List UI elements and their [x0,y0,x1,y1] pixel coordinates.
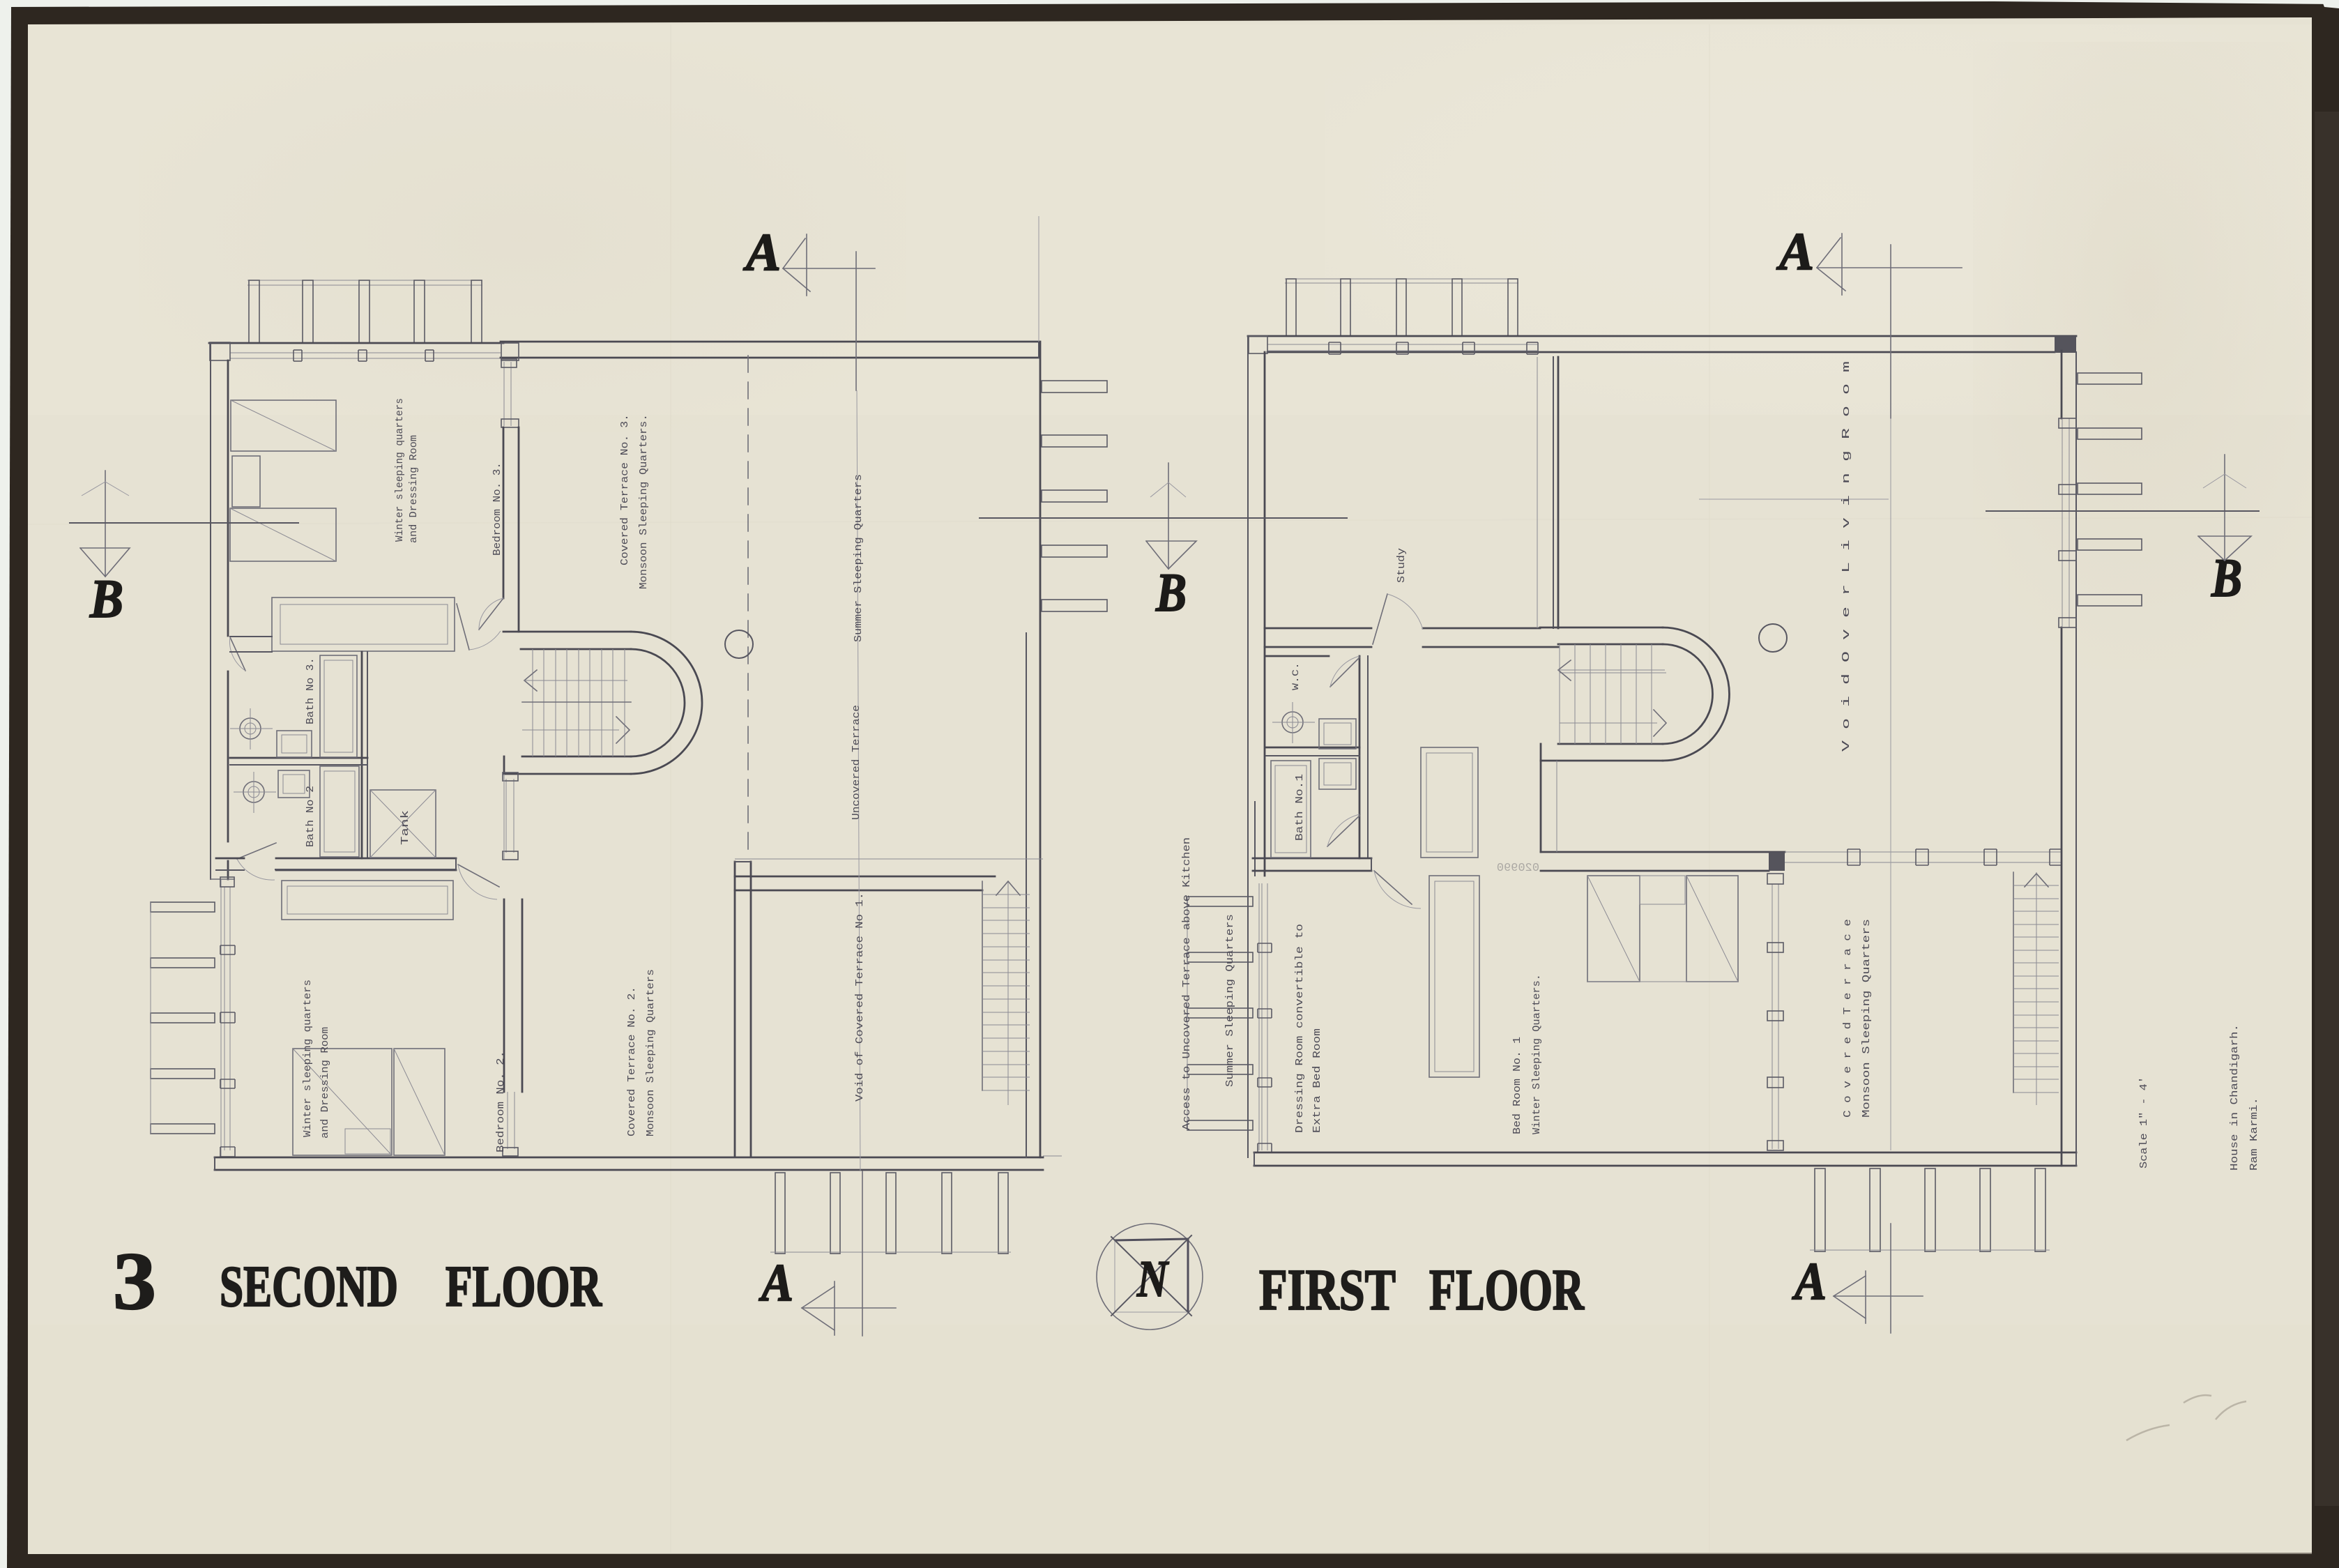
svg-text:B: B [2211,547,2242,608]
svg-text:Ram Karmi.: Ram Karmi. [2248,1097,2260,1171]
svg-text:Bath No 2: Bath No 2 [305,786,317,847]
svg-text:N: N [1136,1251,1169,1308]
svg-text:Bath No 3.: Bath No 3. [305,657,317,724]
svg-text:B: B [1155,562,1187,623]
svg-text:Access to Uncovered Terrace ab: Access to Uncovered Terrace above Kitche… [1181,837,1193,1130]
svg-text:Uncovered Terrace: Uncovered Terrace [851,705,862,820]
svg-text:FIRST: FIRST [1259,1258,1396,1323]
svg-text:B: B [89,568,123,629]
svg-text:Tank: Tank [399,810,411,845]
svg-text:Bed Room No. 1: Bed Room No. 1 [1511,1037,1523,1134]
svg-text:A: A [743,223,781,282]
svg-text:SECOND: SECOND [220,1254,398,1319]
svg-text:FLOOR: FLOOR [445,1254,602,1319]
svg-text:Dressing Room convertible to: Dressing Room convertible to [1294,924,1306,1133]
svg-text:W.C.: W.C. [1290,662,1301,690]
svg-text:Scale 1" - 4': Scale 1" - 4' [2138,1076,2150,1169]
svg-text:Void of Covered Terrace No 1.: Void of Covered Terrace No 1. [854,892,866,1102]
svg-text:Winter sleeping quarters: Winter sleeping quarters [394,398,406,542]
svg-text:Monsoon Sleeping Quarters: Monsoon Sleeping Quarters [1861,919,1873,1118]
svg-text:Summer Sleeping Quarters: Summer Sleeping Quarters [853,474,864,642]
svg-text:Monsoon Sleeping Quarters: Monsoon Sleeping Quarters [645,969,657,1136]
svg-text:Bedroom No. 3.: Bedroom No. 3. [492,462,503,556]
svg-text:Winter Sleeping Quarters.: Winter Sleeping Quarters. [1531,974,1543,1134]
svg-text:A: A [1776,222,1814,281]
svg-text:Study: Study [1396,548,1408,583]
svg-text:V o i d O v e r L i v i n g: V o i d O v e r L i v i n g R o o m [1841,361,1852,752]
svg-text:Winter sleeping quarters: Winter sleeping quarters [302,980,314,1137]
svg-text:Covered Terrace No. 3.: Covered Terrace No. 3. [619,414,631,565]
svg-text:A: A [759,1254,793,1312]
svg-text:020990: 020990 [1497,862,1539,875]
svg-text:Bedroom No. 2.: Bedroom No. 2. [495,1051,507,1152]
svg-text:Monsoon Sleeping Quarters.: Monsoon Sleeping Quarters. [638,414,650,589]
svg-text:3: 3 [113,1235,156,1327]
svg-text:C o v e r e d T e r r a c e: C o v e r e d T e r r a c e [1842,919,1854,1118]
svg-text:and Dressing Room: and Dressing Room [319,1027,331,1139]
svg-text:A: A [1792,1252,1827,1311]
svg-text:FLOOR: FLOOR [1429,1258,1585,1323]
svg-text:House in Chandigarh.: House in Chandigarh. [2229,1024,2241,1171]
svg-text:Covered Terrace No. 2.: Covered Terrace No. 2. [626,987,638,1136]
svg-text:Extra Bed Room: Extra Bed Room [1311,1028,1323,1133]
svg-text:Summer Sleeping Quarters: Summer Sleeping Quarters [1224,914,1236,1087]
svg-text:Bath No.1: Bath No.1 [1294,774,1306,841]
svg-text:and Dressing Room: and Dressing Room [408,435,420,543]
